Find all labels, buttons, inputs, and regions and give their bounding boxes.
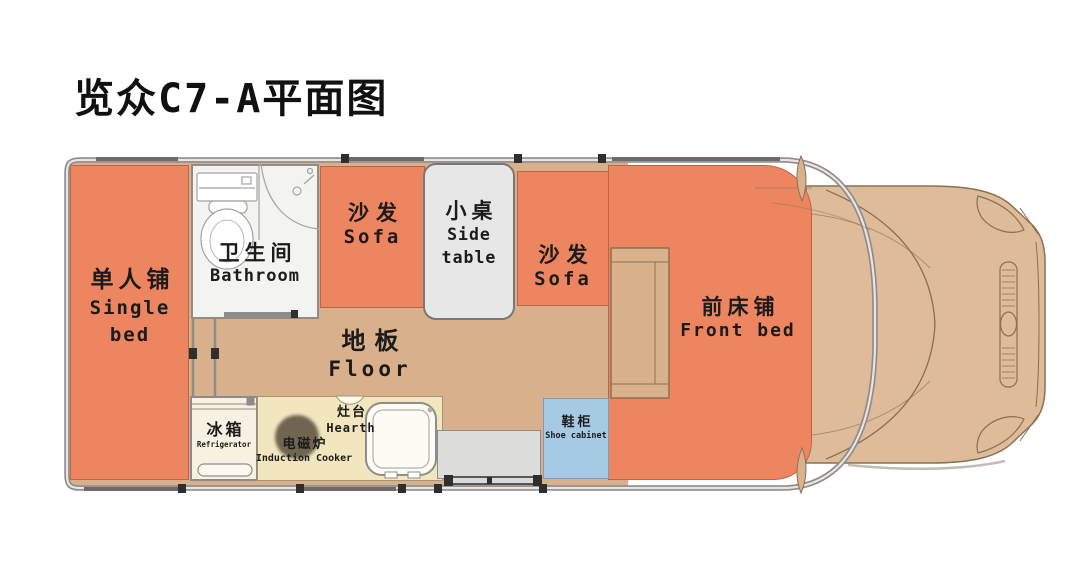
sofa-left-label: 沙发 Sofa bbox=[320, 200, 425, 250]
bathroom-label: 卫生间 Bathroom bbox=[191, 240, 319, 288]
induction-cooker-label: 电磁炉 Induction Cooker bbox=[252, 437, 356, 466]
bathroom-label-zh: 卫生间 bbox=[191, 240, 319, 266]
single-bed-label: 单人铺 Single bed bbox=[70, 266, 190, 350]
refrigerator-label-zh: 冰箱 bbox=[189, 420, 259, 440]
shoe-cabinet-label-en: Shoe cabinet bbox=[541, 431, 611, 442]
bathroom-label-en: Bathroom bbox=[191, 266, 319, 287]
hearth-label-zh: 灶台 bbox=[316, 405, 386, 421]
front-bed-label-en: Front bed bbox=[648, 320, 828, 343]
cab-body-icon bbox=[806, 186, 1045, 469]
side-table-label-en: Side table bbox=[423, 224, 515, 269]
sofa-right-label: 沙发 Sofa bbox=[517, 242, 609, 292]
sofa-right-label-zh: 沙发 bbox=[517, 242, 609, 268]
sofa-right-label-en: Sofa bbox=[517, 268, 609, 292]
shoe-cabinet-label-zh: 鞋柜 bbox=[541, 415, 611, 431]
brand-logo-icon bbox=[1001, 312, 1017, 336]
headlight-top-icon bbox=[977, 196, 1024, 232]
hearth-label-en: Hearth bbox=[316, 421, 386, 436]
entry-step-area bbox=[437, 430, 541, 479]
front-bed-label-zh: 前床铺 bbox=[648, 294, 828, 320]
floor-label-en: Floor bbox=[295, 356, 445, 382]
refrigerator-label: 冰箱 Refrigerator bbox=[189, 420, 259, 449]
side-table-label-zh: 小桌 bbox=[423, 198, 515, 224]
side-table-label: 小桌 Side table bbox=[423, 198, 515, 269]
headlight-bottom-icon bbox=[977, 417, 1024, 453]
grille-icon bbox=[1000, 262, 1017, 387]
floor-label: 地板 Floor bbox=[295, 326, 445, 382]
sofa-left-label-en: Sofa bbox=[320, 226, 425, 250]
floor-label-zh: 地板 bbox=[295, 326, 445, 356]
single-bed-label-en: Single bed bbox=[70, 295, 190, 350]
induction-cooker-label-en: Induction Cooker bbox=[252, 453, 356, 466]
floorplan-canvas: 览众C7-A平面图 bbox=[0, 0, 1080, 564]
front-bed-label: 前床铺 Front bed bbox=[648, 294, 828, 343]
induction-cooker-label-zh: 电磁炉 bbox=[252, 437, 356, 453]
shoe-cabinet-label: 鞋柜 Shoe cabinet bbox=[541, 415, 611, 442]
hearth-label: 灶台 Hearth bbox=[316, 405, 386, 436]
refrigerator-label-en: Refrigerator bbox=[189, 440, 259, 449]
page-title: 览众C7-A平面图 bbox=[74, 66, 388, 124]
sofa-left-label-zh: 沙发 bbox=[320, 200, 425, 226]
single-bed-label-zh: 单人铺 bbox=[70, 266, 190, 295]
